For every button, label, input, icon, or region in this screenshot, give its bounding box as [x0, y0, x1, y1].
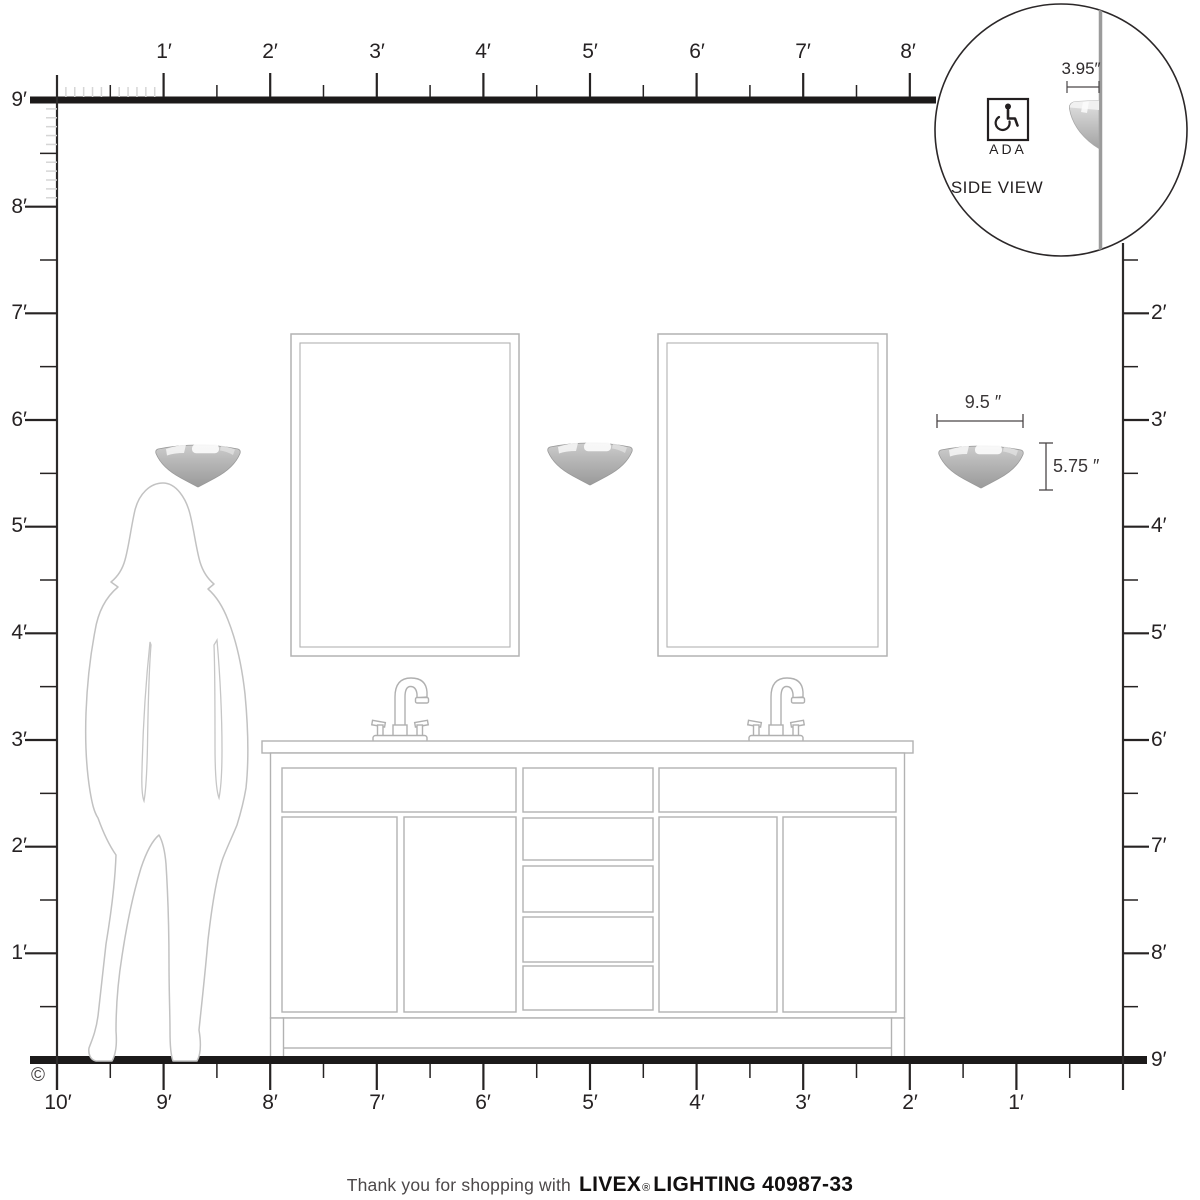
right-ruler-label: 8′ [1151, 942, 1167, 964]
mirror-right [658, 334, 887, 656]
vanity-cabinet [262, 741, 913, 1058]
bottom-ruler-label: 9′ [156, 1092, 172, 1114]
vanity-false-front-right [659, 768, 896, 812]
faucet-left [372, 678, 429, 743]
top-ruler-label: 6′ [689, 41, 705, 63]
vanity-countertop [262, 741, 913, 753]
vanity-drawer-4 [523, 966, 653, 1010]
left-ruler-label: 4′ [0, 622, 27, 644]
sconce-right [939, 445, 1024, 488]
top-ruler-label: 3′ [369, 41, 385, 63]
bottom-ruler-label: 7′ [369, 1092, 385, 1114]
bottom-ruler-label: 10′ [44, 1092, 71, 1114]
top-ruler-label: 5′ [582, 41, 598, 63]
vanity-false-front-left [282, 768, 516, 812]
bottom-ruler-label: 5′ [582, 1092, 598, 1114]
sconce-height-dimension-label: 5.75 ″ [1053, 456, 1099, 477]
right-ruler-label: 6′ [1151, 729, 1167, 751]
side-view-caption: SIDE VIEW [951, 178, 1043, 198]
bottom-ruler-label: 3′ [795, 1092, 811, 1114]
vanity-drawer-2 [523, 866, 653, 912]
left-ruler-label: 3′ [0, 729, 27, 751]
bottom-ruler-label: 2′ [902, 1092, 918, 1114]
top-ruler-label: 2′ [262, 41, 278, 63]
footer-thanks-text: Thank you for shopping with [347, 1175, 571, 1196]
bottom-ruler-label: 4′ [689, 1092, 705, 1114]
bottom-ruler-label: 6′ [475, 1092, 491, 1114]
bottom-ruler-label: 1′ [1008, 1092, 1024, 1114]
height-dimension-line [1039, 443, 1053, 490]
human-figure-silhouette [86, 483, 248, 1061]
bottom-ruler-label: 8′ [262, 1092, 278, 1114]
vanity-door-4 [783, 817, 896, 1012]
product-model-text: LIGHTING 40987-33 [653, 1173, 853, 1197]
vanity-leg-right [892, 1018, 905, 1058]
left-ruler-label: 5′ [0, 515, 27, 537]
sconce-center [548, 442, 633, 485]
scale-diagram-page: 1′ 2′ 3′ 4′ 5′ 6′ 7′ 8′ 9′ 8′ 7′ 6′ 5′ 4… [0, 0, 1200, 1200]
right-ruler-label: 4′ [1151, 515, 1167, 537]
side-view-inset [935, 2, 1187, 258]
top-ruler-label: 7′ [795, 41, 811, 63]
brand-name: LIVEX [579, 1173, 641, 1197]
top-ruler-label: 4′ [475, 41, 491, 63]
vanity-false-front-center [523, 768, 653, 812]
top-ruler-label: 8′ [900, 41, 916, 63]
ada-icon [988, 99, 1028, 140]
left-ruler-label: 6′ [0, 409, 27, 431]
right-ruler-label: 3′ [1151, 409, 1167, 431]
vanity-drawer-3 [523, 917, 653, 962]
sconce-width-dimension-label: 9.5 ″ [965, 392, 1001, 413]
sconce-depth-dimension-label: 3.95″ [1061, 59, 1100, 79]
sconce-left [156, 444, 241, 487]
vanity-leg-left [271, 1018, 284, 1058]
right-ruler-label: 5′ [1151, 622, 1167, 644]
right-ruler-label: 9′ [1151, 1049, 1167, 1071]
left-ruler-label: 9′ [0, 89, 27, 111]
ada-compliance-label: ADA [989, 141, 1027, 157]
right-ruler-label: 2′ [1151, 302, 1167, 324]
right-ruler-label: 7′ [1151, 835, 1167, 857]
vanity-apron [283, 1018, 892, 1048]
width-dimension-line [937, 414, 1023, 428]
left-ruler-label: 2′ [0, 835, 27, 857]
copyright-symbol: © [31, 1065, 45, 1087]
mirror-left [291, 334, 519, 656]
registered-trademark-symbol: ® [642, 1182, 650, 1194]
left-ruler-label: 8′ [0, 196, 27, 218]
faucet-right [748, 678, 805, 743]
vanity-drawer-1 [523, 818, 653, 860]
vanity-door-2 [404, 817, 516, 1012]
left-ruler-label: 1′ [0, 942, 27, 964]
footer-caption: Thank you for shopping with LIVEX ® LIGH… [0, 1173, 1200, 1197]
vanity-door-3 [659, 817, 777, 1012]
top-ruler-label: 1′ [156, 41, 172, 63]
vanity-door-1 [282, 817, 397, 1012]
left-ruler-label: 7′ [0, 302, 27, 324]
